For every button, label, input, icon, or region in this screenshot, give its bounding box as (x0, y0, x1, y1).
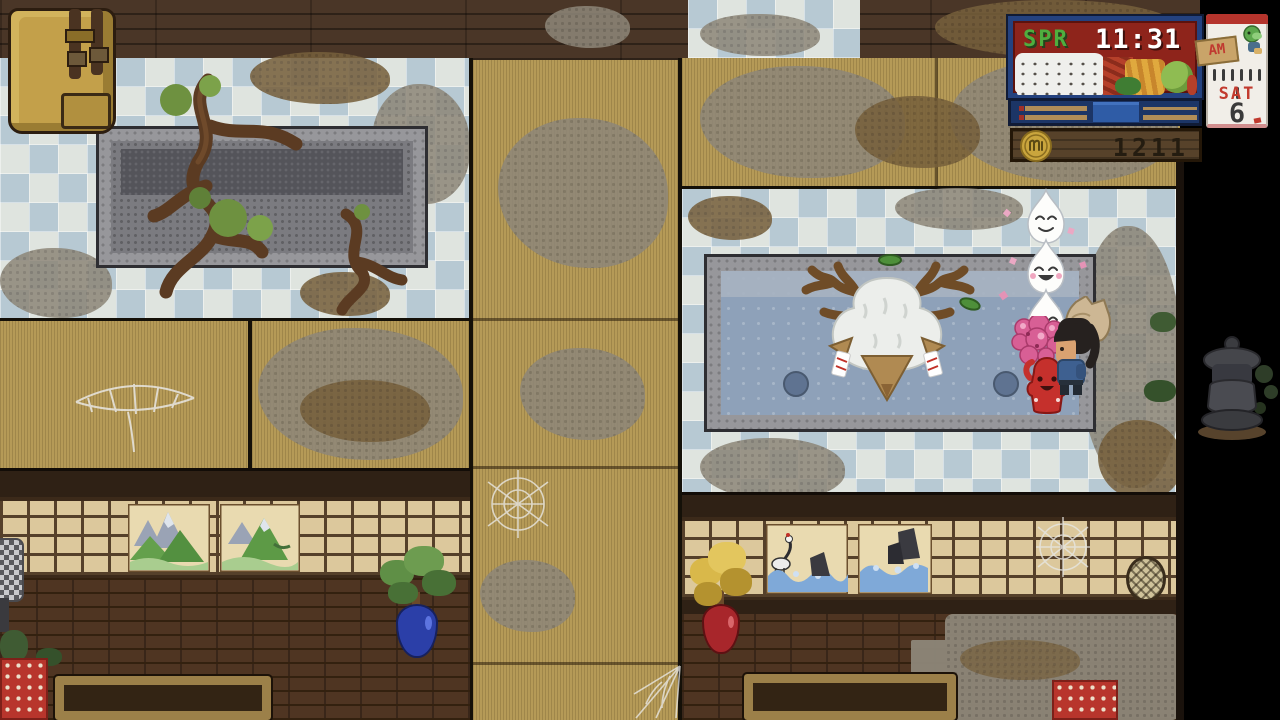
standing-lamp-partial (0, 538, 24, 602)
backpack-strap (69, 9, 81, 79)
wall-edge-strip (1176, 140, 1184, 720)
player-character[interactable] (1046, 296, 1112, 396)
backpack-buckle (67, 51, 87, 67)
wall-top-right (682, 492, 1180, 518)
floor-seam (473, 318, 678, 321)
tree-foliage (388, 582, 418, 604)
spider-web (632, 664, 682, 720)
coin-icon (1019, 129, 1053, 163)
calendar-cover-edge (1206, 14, 1268, 24)
clock-time: 11:31 (1095, 24, 1181, 55)
hud-clock-panel: SPR 11:31 (1008, 16, 1202, 98)
floor-cushion (0, 658, 48, 720)
spider-web (70, 368, 200, 456)
turtle-mascot-icon (1240, 24, 1266, 58)
backpack-buckle (89, 47, 109, 63)
tree-foliage-yellow (720, 568, 752, 596)
spider-web (1032, 515, 1094, 579)
wave-painting-rocks (858, 524, 932, 594)
meter-tick (1019, 115, 1024, 120)
lamp-shade (1126, 556, 1166, 602)
money-amount: 1211 (1113, 133, 1189, 162)
mountain-painting (220, 504, 300, 572)
tree-foliage (422, 570, 456, 596)
meter-tick (1019, 106, 1024, 111)
hud-money-plaque: 1211 (1010, 128, 1202, 162)
deer-spirit[interactable] (772, 250, 1002, 405)
pot-highlight (728, 616, 734, 628)
meter-bar (1143, 107, 1197, 110)
mountain-painting (128, 504, 210, 572)
spider-web (482, 468, 554, 540)
vegetables-icon (1103, 57, 1197, 95)
tree-foliage-yellow (694, 582, 722, 606)
plant-pot-red (702, 604, 740, 654)
meridiem-label: AM (1208, 41, 1227, 59)
greens-icon (1115, 77, 1141, 95)
calendar-spiral-binding (1208, 68, 1266, 82)
rice-bowl-icon (1017, 59, 1103, 95)
pot-highlight (425, 616, 432, 630)
backpack[interactable] (8, 8, 116, 134)
potted-tree-red (690, 542, 756, 664)
am-tag: AM (1195, 36, 1240, 67)
floor-cushion (1052, 680, 1118, 720)
stone-lantern (1186, 334, 1278, 440)
potted-tree-blue (378, 546, 458, 666)
meter-bar (1025, 106, 1087, 111)
wall-top-left (0, 468, 470, 498)
meter-bar (1025, 115, 1087, 120)
backpack-zip (65, 29, 95, 43)
plant-pot-blue (396, 604, 438, 658)
moss-clump (1150, 312, 1176, 332)
wave-painting-crane (766, 524, 848, 594)
lamp-pole (0, 598, 9, 632)
hud-calendar: AM SAT 6 (1206, 14, 1268, 128)
season-label: SPR (1023, 27, 1069, 52)
moss-clump (1144, 380, 1176, 402)
calendar-day: 6 (1208, 98, 1266, 129)
backpack-pocket (61, 93, 111, 129)
tatami-divider (248, 318, 252, 468)
overgrown-roots (110, 66, 410, 316)
low-table (744, 674, 956, 720)
game-viewport: SPR 11:31 1211 (0, 0, 1280, 720)
meter-bar (1143, 115, 1197, 120)
radish-icon (1187, 75, 1197, 95)
meter-water-gauge (1093, 102, 1139, 122)
low-table (55, 676, 271, 720)
hud-meter-bar (1008, 98, 1202, 126)
